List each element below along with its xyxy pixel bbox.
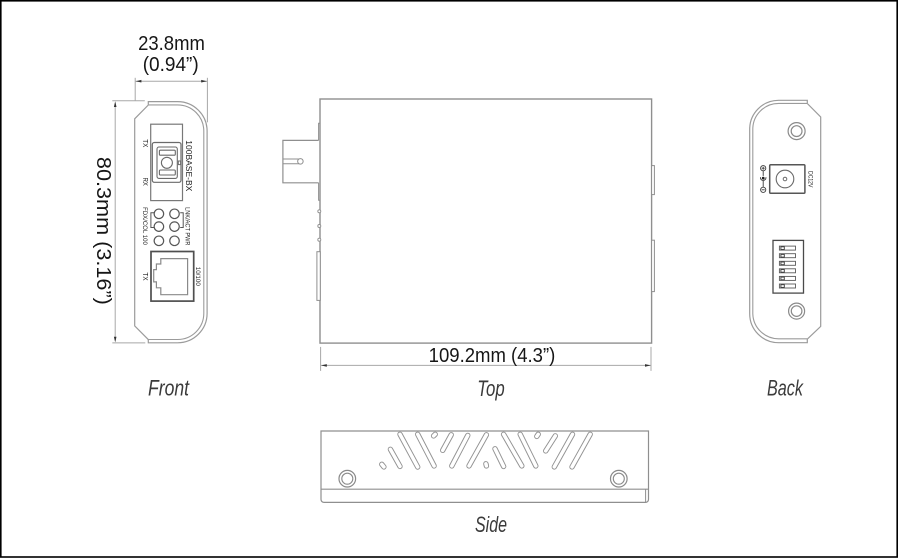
svg-text:LNK/ACT PWR: LNK/ACT PWR bbox=[184, 207, 191, 246]
svg-text:Top: Top bbox=[477, 376, 504, 401]
svg-text:TX: TX bbox=[141, 139, 148, 147]
svg-text:DC12V: DC12V bbox=[807, 171, 813, 187]
svg-text:Back: Back bbox=[767, 376, 804, 401]
svg-text:(0.94”): (0.94”) bbox=[143, 54, 199, 76]
svg-text:109.2mm (4.3”): 109.2mm (4.3”) bbox=[429, 345, 556, 367]
svg-text:100BASE-BX: 100BASE-BX bbox=[184, 140, 193, 192]
svg-text:80.3mm (3.16”): 80.3mm (3.16”) bbox=[92, 157, 114, 305]
svg-text:10/100: 10/100 bbox=[194, 267, 201, 287]
svg-text:23.8mm: 23.8mm bbox=[138, 33, 205, 55]
svg-text:Front: Front bbox=[148, 376, 190, 401]
svg-text:FDX/COL 100: FDX/COL 100 bbox=[141, 207, 148, 245]
svg-text:RX: RX bbox=[141, 178, 148, 186]
svg-text:Side: Side bbox=[475, 512, 507, 537]
svg-text:TX: TX bbox=[141, 272, 148, 280]
